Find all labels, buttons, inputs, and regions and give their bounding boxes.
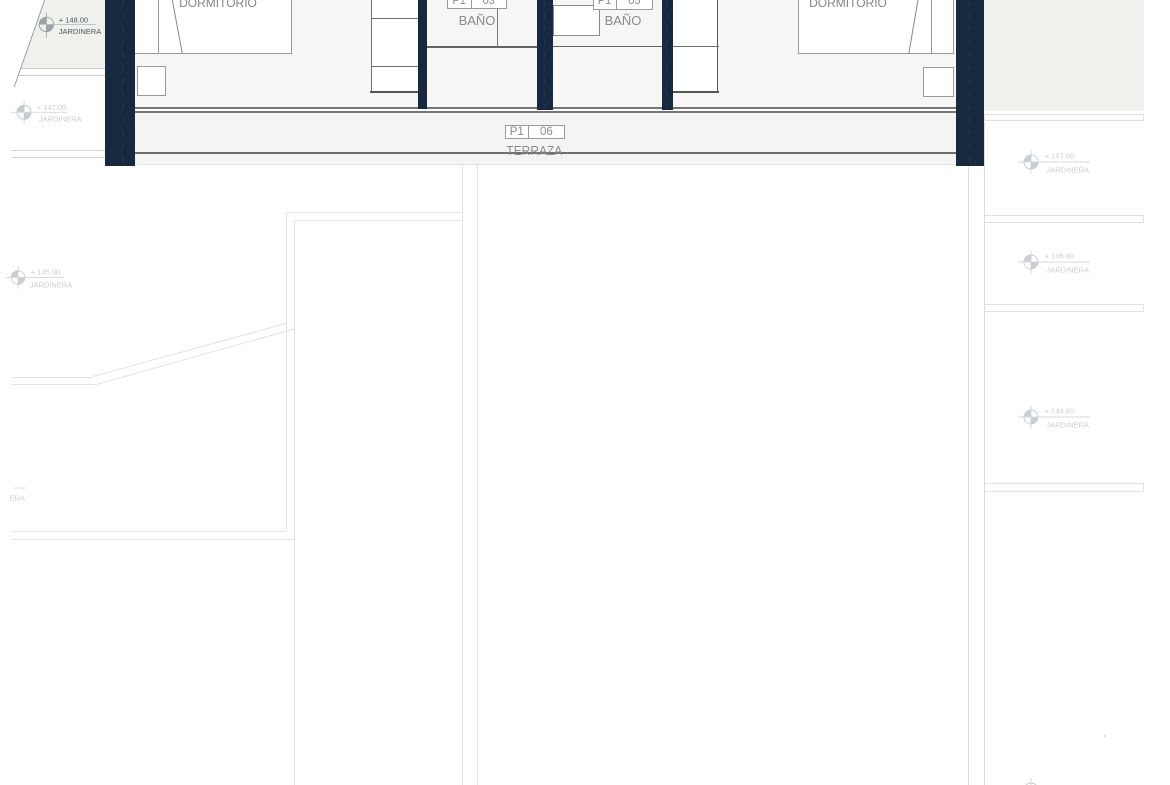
svg-text:+ 145.00: + 145.00 xyxy=(31,268,60,277)
svg-text:+ 147.00: + 147.00 xyxy=(37,103,66,112)
svg-text:JARDINERA: JARDINERA xyxy=(1047,165,1090,174)
svg-text:+ 145.80: + 145.80 xyxy=(1045,251,1074,260)
svg-text:JARDINERA: JARDINERA xyxy=(1047,265,1090,274)
svg-text:JARDINERA: JARDINERA xyxy=(1047,420,1090,429)
svg-text:+ 144.80: + 144.80 xyxy=(1045,406,1074,415)
svg-text:JARDINERA: JARDINERA xyxy=(30,281,73,290)
svg-text:+ 148.00: + 148.00 xyxy=(59,16,88,25)
svg-text:JARDINERA: JARDINERA xyxy=(59,27,102,36)
svg-text:+ 147.00: + 147.00 xyxy=(1045,151,1074,160)
svg-text:JARDINERA: JARDINERA xyxy=(39,115,82,124)
